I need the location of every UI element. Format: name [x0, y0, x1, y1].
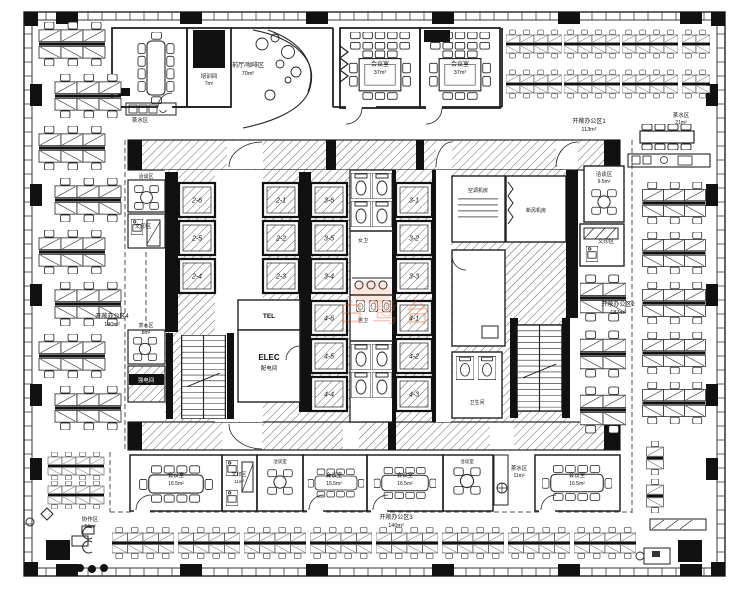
shaft-wall [299, 172, 311, 412]
room-label: 7m² [205, 81, 214, 87]
room-label: 会议室 [326, 471, 343, 479]
shaft-wall [566, 170, 578, 318]
column [558, 12, 580, 24]
toilet-stall [372, 201, 392, 227]
room-label: 洽谈区 [138, 173, 153, 180]
room-label: 16.5m² [569, 481, 585, 487]
room-label: 113m² [581, 127, 596, 133]
r [388, 422, 396, 450]
core-wall-band [128, 140, 620, 170]
toilet-stall [478, 356, 496, 379]
storage-cabinet [46, 540, 70, 560]
room-label: 文印区 [598, 237, 615, 245]
column [558, 564, 580, 576]
corner-column [711, 562, 725, 576]
room-label: 140m² [104, 322, 120, 328]
room-label: 洽谈区 [596, 170, 613, 178]
r [416, 140, 424, 170]
room-label: 开敞办公区1 [572, 117, 606, 125]
elevator-label: 2-4 [191, 274, 202, 281]
column [306, 564, 328, 576]
c [100, 564, 108, 572]
room-label: 卫生间 [469, 399, 484, 406]
r [326, 140, 336, 170]
room-label: 茶水区 [132, 116, 149, 124]
c [76, 564, 84, 572]
room-label: 前厅/咖啡区 [232, 61, 264, 69]
c [88, 565, 96, 573]
toilet-stall [372, 344, 392, 370]
toilet-stall [351, 201, 371, 227]
room-label: 70m² [242, 71, 255, 77]
elevator-lobby [436, 170, 451, 422]
toilet-stall [351, 372, 371, 398]
room-label: 培训间 [201, 72, 218, 80]
column [680, 564, 702, 576]
staircase [182, 335, 226, 419]
r [426, 105, 442, 110]
r [158, 104, 172, 110]
r [652, 551, 660, 557]
column [56, 564, 78, 576]
room-label: 37m² [454, 70, 467, 76]
desk-cluster [55, 178, 121, 222]
toilet-stall [456, 356, 474, 379]
r [510, 318, 518, 418]
room-label: 16.5m² [168, 481, 184, 487]
corner-column [24, 12, 38, 26]
media-screen [424, 30, 450, 42]
column [706, 384, 718, 406]
room-label: ELEC [258, 353, 280, 362]
toilet-stall [351, 344, 371, 370]
door-opening [222, 423, 262, 449]
room-label: 强电间 [138, 376, 155, 384]
room-label: 16.5m² [397, 481, 413, 487]
r [193, 30, 225, 68]
room-label: TEL [263, 313, 275, 320]
elevator-label: 3-4 [324, 274, 334, 281]
room-label: 开敞办公区4 [95, 312, 129, 320]
column [180, 564, 202, 576]
desk-cluster [55, 386, 121, 430]
r [458, 204, 498, 206]
desk-cluster [39, 126, 105, 170]
room-label: 洽谈室 [460, 458, 474, 465]
desk-cluster [39, 22, 105, 66]
desk-cluster [643, 332, 706, 374]
column [706, 458, 718, 480]
desk-cluster [643, 282, 706, 324]
toilet-stall [351, 173, 371, 199]
room-label: 开敞办公区3 [379, 513, 413, 521]
room-label: 8m² [142, 330, 151, 336]
column [30, 184, 42, 206]
room-label: 茶水区 [673, 111, 690, 119]
desk-cluster [643, 382, 706, 424]
door-opening [227, 141, 263, 169]
door-opening [490, 423, 514, 449]
room-label: 女卫 [358, 237, 368, 244]
room-label: 21m² [675, 120, 687, 126]
room-label: 24m² [84, 524, 96, 530]
room-label: 会议室 [168, 471, 185, 479]
core-wall-band [128, 422, 620, 450]
equipment-cabinet [678, 540, 702, 562]
elevator-label: 2-2 [275, 236, 286, 243]
room-label: 文印区 [135, 222, 152, 230]
column [432, 12, 454, 24]
corner-column [711, 12, 725, 26]
elevator-label: 4-5 [324, 354, 334, 361]
room-label: 9.5m² [598, 179, 611, 185]
elevator-label: 4-4 [324, 392, 334, 399]
r [166, 333, 173, 419]
desk-cluster [643, 182, 706, 224]
room-label: 文印区 [231, 471, 246, 478]
r [128, 140, 142, 170]
elevator-label: 2-6 [191, 198, 202, 205]
toilet-stall [372, 173, 392, 199]
r [346, 105, 362, 110]
copier [586, 246, 598, 262]
elevator-label: 3-3 [409, 274, 419, 281]
room-label: 配电间 [261, 364, 278, 372]
r [227, 333, 234, 419]
staircase [517, 325, 562, 411]
room-label: 会议室 [569, 471, 586, 479]
room-label: 会议室 [451, 60, 469, 68]
desk-cluster [39, 230, 105, 274]
elevator-label: 3-5 [324, 236, 334, 243]
room-label: 会议室 [371, 60, 389, 68]
elevator-label: 4-3 [409, 392, 419, 399]
elevator-label: 3-6 [324, 198, 334, 205]
column [180, 12, 202, 24]
column [306, 12, 328, 24]
desk-cluster [55, 74, 121, 118]
copier [226, 490, 238, 506]
watermark-text: 白鹭台 [338, 298, 437, 328]
room-label: 茶水区 [138, 322, 153, 329]
elevator-label: 4-2 [409, 354, 419, 361]
room-label: 开敞办公区2 [601, 300, 635, 308]
column [706, 184, 718, 206]
machine-room [452, 250, 505, 346]
room-label: 11m² [513, 473, 524, 479]
elevator-label: 2-3 [275, 274, 286, 281]
desk-cluster [39, 334, 105, 378]
machine-room [452, 176, 505, 242]
room-label: 140m² [388, 523, 404, 529]
room-label: 16.5m² [326, 481, 342, 487]
column [30, 84, 42, 106]
elevator-label: 4-6 [324, 316, 334, 323]
floor-plan-canvas: 2-62-52-42-12-22-33-63-53-44-64-54-43-13… [0, 0, 747, 600]
floor-plan-page: 2-62-52-42-12-22-33-63-53-44-64-54-43-13… [0, 0, 747, 600]
elevator-label: 3-2 [409, 236, 419, 243]
room-label: 空调机房 [468, 187, 488, 194]
column [30, 458, 42, 480]
desk-cluster [643, 232, 706, 274]
column [680, 12, 702, 24]
corner-column [24, 562, 38, 576]
room-label: 新风机房 [526, 207, 546, 214]
elevator-label: 2-5 [191, 236, 202, 243]
room-label: 茶水区 [511, 464, 528, 472]
r [458, 216, 498, 218]
room-label: 187m² [610, 310, 626, 316]
column [30, 384, 42, 406]
elevator-label: 3-1 [409, 198, 419, 205]
r [562, 318, 570, 418]
r [458, 210, 498, 212]
door-opening [343, 423, 359, 449]
room-label: 协作区 [82, 515, 99, 523]
column [432, 564, 454, 576]
r [128, 422, 142, 450]
shaft-wall [165, 172, 178, 332]
column [706, 284, 718, 306]
toilet-stall [372, 372, 392, 398]
r [458, 198, 498, 200]
room-label: 会议室 [397, 471, 414, 479]
room-label: 11m² [234, 479, 244, 484]
elevator-label: 2-1 [275, 198, 286, 205]
room-label: 洽谈室 [273, 458, 287, 465]
room-label: 37m² [374, 70, 387, 76]
column [30, 284, 42, 306]
